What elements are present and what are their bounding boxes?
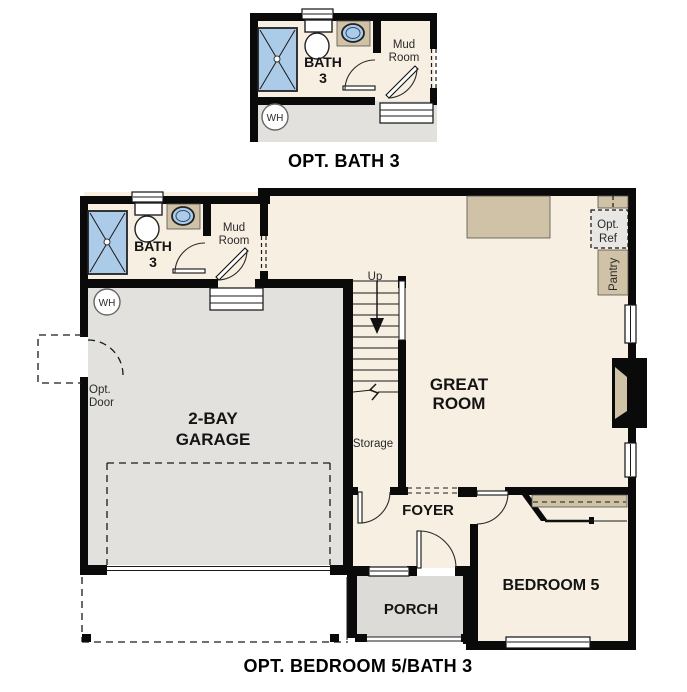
inset-shower [258,28,297,91]
garage-door [107,565,330,573]
mudroom-label: Mud [223,222,245,234]
stairs-up-label: Up [368,271,383,283]
great-room-window-lower [625,443,636,477]
svg-text:Pantry: Pantry [608,258,620,291]
main-caption: OPT. BEDROOM 5/BATH 3 [244,656,473,676]
svg-text:Ref: Ref [599,233,618,245]
svg-text:WH: WH [267,113,284,124]
inset-bath-number: 3 [319,70,327,86]
bedroom-window [506,637,590,648]
porch-label: PORCH [384,601,438,618]
fireplace [612,358,647,428]
great-room-label: ROOM [433,394,486,413]
water-heater: WH [94,289,120,315]
pantry: Pantry [598,250,628,295]
kitchen-counter [598,196,628,208]
svg-text:Opt.: Opt. [597,219,619,231]
inset-garage-steps [380,103,433,123]
shower [88,211,127,274]
sink [167,204,200,229]
inset-caption: OPT. BATH 3 [288,151,400,171]
driveway-outline [82,577,348,642]
inset-bath-label: BATH [304,54,342,70]
storage-label: Storage [353,438,393,450]
svg-text:Opt.: Opt. [89,384,111,396]
floorplan-drawing: WH BATH 3 Mud Room OPT. BATH 3 [0,0,687,687]
bedroom-label: BEDROOM 5 [503,577,600,594]
opt-refrigerator: Opt. Ref [591,210,628,248]
foyer-window [369,567,409,576]
bath-number: 3 [149,254,157,270]
inset-opt-bath3: WH BATH 3 Mud Room OPT. BATH 3 [250,9,437,171]
inset-sink [337,21,370,46]
kitchen-island [467,196,550,238]
bath-label: BATH [134,238,172,254]
garage-steps [210,288,263,310]
great-room-label: GREAT [430,375,489,394]
inset-mudroom-label: Mud [393,39,415,51]
inset-water-heater: WH [262,104,288,130]
inset-bath-window [302,9,333,19]
svg-text:WH: WH [99,298,116,309]
main-plan: WH Opt. Ref Pantry [38,188,647,676]
bath-window [132,192,163,202]
great-room-window-upper [625,305,636,343]
floorplan-page: WH BATH 3 Mud Room OPT. BATH 3 [0,0,687,687]
mudroom-label: Room [219,235,250,247]
garage-label: GARAGE [176,430,251,449]
svg-text:Door: Door [89,397,114,409]
garage-label: 2-BAY [188,409,238,428]
inset-mudroom-label: Room [389,52,420,64]
foyer-label: FOYER [402,502,454,519]
